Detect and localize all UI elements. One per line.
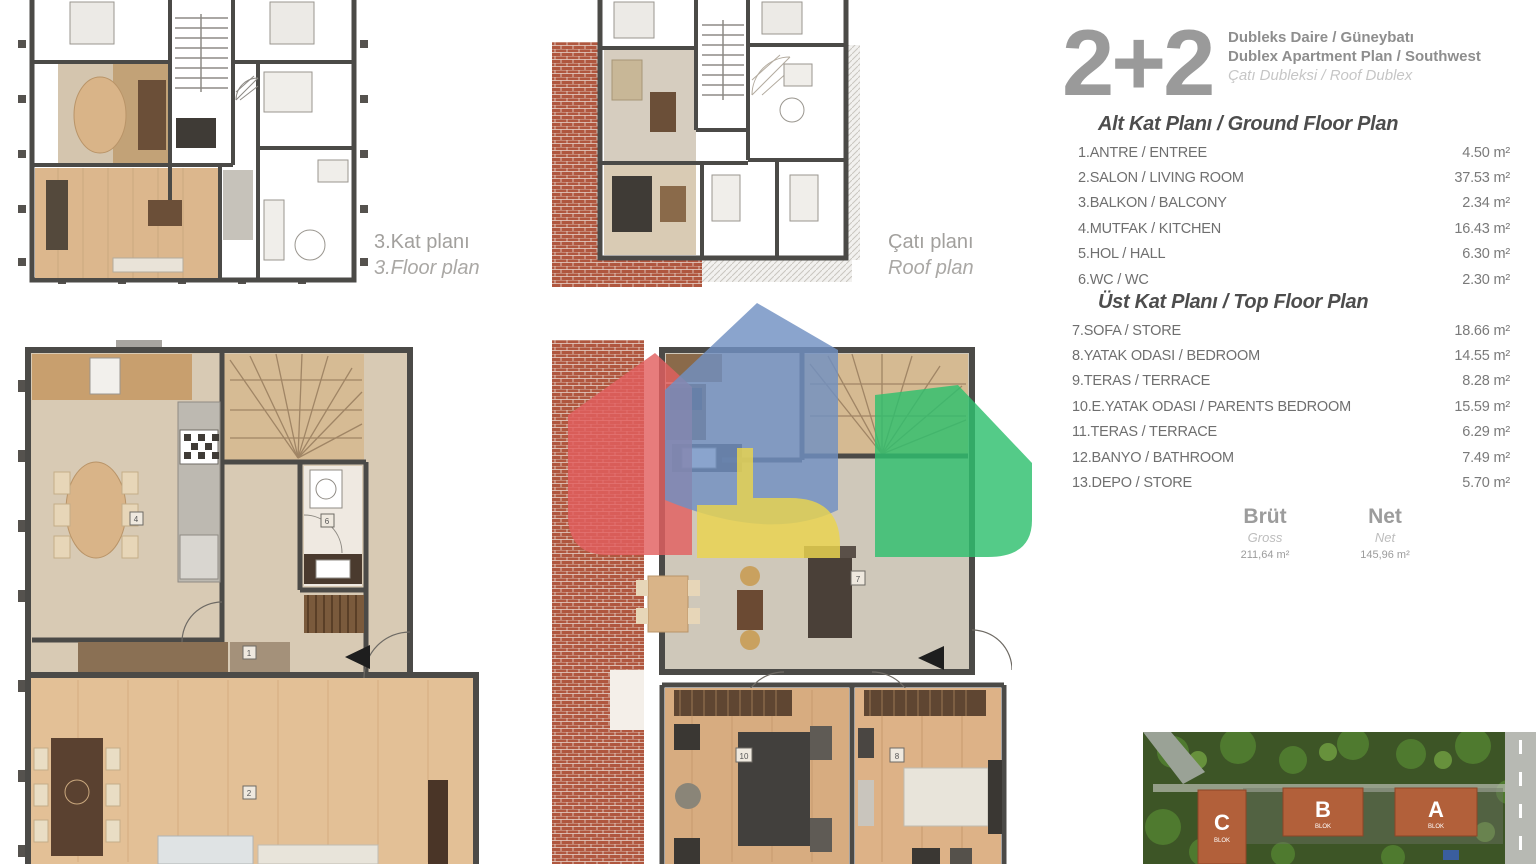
room-area: 8.28 m² — [1462, 373, 1510, 389]
building-b-blok: BLOK — [1315, 824, 1331, 830]
terrace-brick — [552, 340, 644, 864]
room-area: 2.30 m² — [1462, 272, 1510, 288]
room-row: 8.YATAK ODASI / BEDROOM 14.55 m² — [1072, 343, 1510, 368]
third-floor-caption: 3.Kat planı 3.Floor plan — [374, 229, 480, 281]
dining-table — [54, 462, 138, 558]
apartment-type-code: 2+2 — [1062, 18, 1212, 108]
room-area: 5.70 m² — [1462, 475, 1510, 491]
room-row: 6.WC / WC 2.30 m² — [1078, 267, 1510, 292]
room-row: 2.SALON / LIVING ROOM 37.53 m² — [1078, 165, 1510, 190]
stair-floor — [224, 354, 364, 460]
roof-caption: Çatı planı Roof plan — [888, 229, 974, 281]
room-row: 3.BALKON / BALCONY 2.34 m² — [1078, 191, 1510, 216]
room-area: 4.50 m² — [1462, 145, 1510, 161]
building-b-label: B — [1315, 797, 1331, 822]
room-area: 16.43 m² — [1454, 221, 1510, 237]
room-label: 10.E.YATAK ODASI / PARENTS BEDROOM — [1072, 399, 1351, 415]
header-line-en: Dublex Apartment Plan / Southwest — [1228, 47, 1481, 66]
room-area: 15.59 m² — [1454, 399, 1510, 415]
top-floor-title: Üst Kat Planı / Top Floor Plan — [1098, 291, 1368, 314]
room-marker-bedroom: 8 — [895, 752, 900, 761]
gross-value: 211,64 m² — [1205, 547, 1325, 563]
lower-floor-plan-drawing: 4 6 1 2 — [18, 340, 483, 864]
room-label: 5.HOL / HALL — [1078, 246, 1165, 262]
building-c-blok: BLOK — [1214, 838, 1230, 844]
building-c-label: C — [1214, 810, 1230, 835]
gross-label-tr: Brüt — [1205, 505, 1325, 529]
top-floor-room-list: 7.SOFA / STORE 18.66 m² 8.YATAK ODASI / … — [1072, 318, 1510, 496]
room-area: 6.29 m² — [1462, 424, 1510, 440]
net-value: 145,96 m² — [1330, 547, 1440, 563]
room-row: 11.TERAS / TERRACE 6.29 m² — [1072, 420, 1510, 445]
room-row: 1.ANTRE / ENTREE 4.50 m² — [1078, 140, 1510, 165]
room-area: 18.66 m² — [1454, 323, 1510, 339]
room-label: 4.MUTFAK / KITCHEN — [1078, 221, 1221, 237]
room-row: 4.MUTFAK / KITCHEN 16.43 m² — [1078, 216, 1510, 241]
building-a-blok: BLOK — [1428, 824, 1444, 830]
vehicle — [1443, 850, 1459, 860]
gross-label-en: Gross — [1205, 529, 1325, 547]
room-area: 7.49 m² — [1462, 450, 1510, 466]
room-label: 12.BANYO / BATHROOM — [1072, 450, 1234, 466]
terrace-gap — [610, 670, 644, 730]
site-aerial-view: C BLOK B BLOK A BLOK — [1143, 732, 1536, 864]
third-floor-caption-tr: 3.Kat planı — [374, 229, 480, 255]
room-row: 9.TERAS / TERRACE 8.28 m² — [1072, 369, 1510, 394]
room-label: 3.BALKON / BALCONY — [1078, 195, 1227, 211]
room-row: 10.E.YATAK ODASI / PARENTS BEDROOM 15.59… — [1072, 394, 1510, 419]
third-floor-caption-en: 3.Floor plan — [374, 255, 480, 281]
kitchen-counters — [178, 402, 220, 582]
top-floor-plan-drawing: 7 10 8 — [552, 340, 1012, 864]
net-total: Net Net 145,96 m² — [1330, 505, 1440, 563]
brick-roof-left — [552, 42, 600, 287]
third-floor-plan-drawing — [18, 0, 368, 287]
room-area: 37.53 m² — [1454, 170, 1510, 186]
net-label-tr: Net — [1330, 505, 1440, 529]
room-row: 12.BANYO / BATHROOM 7.49 m² — [1072, 445, 1510, 470]
bench — [78, 642, 290, 672]
room-row: 5.HOL / HALL 6.30 m² — [1078, 242, 1510, 267]
room-label: 8.YATAK ODASI / BEDROOM — [1072, 348, 1260, 364]
room-label: 13.DEPO / STORE — [1072, 475, 1192, 491]
room-row: 13.DEPO / STORE 5.70 m² — [1072, 470, 1510, 495]
room-label: 1.ANTRE / ENTREE — [1078, 145, 1207, 161]
building-a-label: A — [1428, 797, 1444, 822]
room-marker-antre: 1 — [247, 649, 252, 658]
room-marker-kitchen: 4 — [134, 515, 139, 524]
roof-caption-tr: Çatı planı — [888, 229, 974, 255]
room-marker-sofa: 7 — [856, 575, 861, 584]
room-area: 6.30 m² — [1462, 246, 1510, 262]
header-line-tr: Dubleks Daire / Güneybatı — [1228, 28, 1481, 47]
header-line-sub: Çatı Dubleksi / Roof Dublex — [1228, 66, 1481, 85]
room-marker-salon: 2 — [247, 789, 252, 798]
roof-caption-en: Roof plan — [888, 255, 974, 281]
room-area: 14.55 m² — [1454, 348, 1510, 364]
apartment-type-header: Dubleks Daire / Güneybatı Dublex Apartme… — [1228, 28, 1481, 85]
appliance — [90, 358, 120, 394]
room-label: 9.TERAS / TERRACE — [1072, 373, 1210, 389]
roof-plan-drawing — [552, 0, 872, 287]
room-marker-wc: 6 — [325, 517, 330, 526]
room-label: 2.SALON / LIVING ROOM — [1078, 170, 1244, 186]
ground-floor-room-list: 1.ANTRE / ENTREE 4.50 m² 2.SALON / LIVIN… — [1078, 140, 1510, 292]
room-label: 6.WC / WC — [1078, 272, 1149, 288]
hatch-roof-bottom — [702, 258, 852, 282]
room-area: 2.34 m² — [1462, 195, 1510, 211]
room-label: 11.TERAS / TERRACE — [1072, 424, 1217, 440]
wardrobe — [304, 595, 364, 633]
room-row: 7.SOFA / STORE 18.66 m² — [1072, 318, 1510, 343]
net-label-en: Net — [1330, 529, 1440, 547]
page: 3.Kat planı 3.Floor plan — [0, 0, 1536, 864]
room-label: 7.SOFA / STORE — [1072, 323, 1181, 339]
ground-floor-title: Alt Kat Planı / Ground Floor Plan — [1098, 113, 1398, 136]
gross-total: Brüt Gross 211,64 m² — [1205, 505, 1325, 563]
room-marker-parents-bedroom: 10 — [740, 752, 749, 761]
